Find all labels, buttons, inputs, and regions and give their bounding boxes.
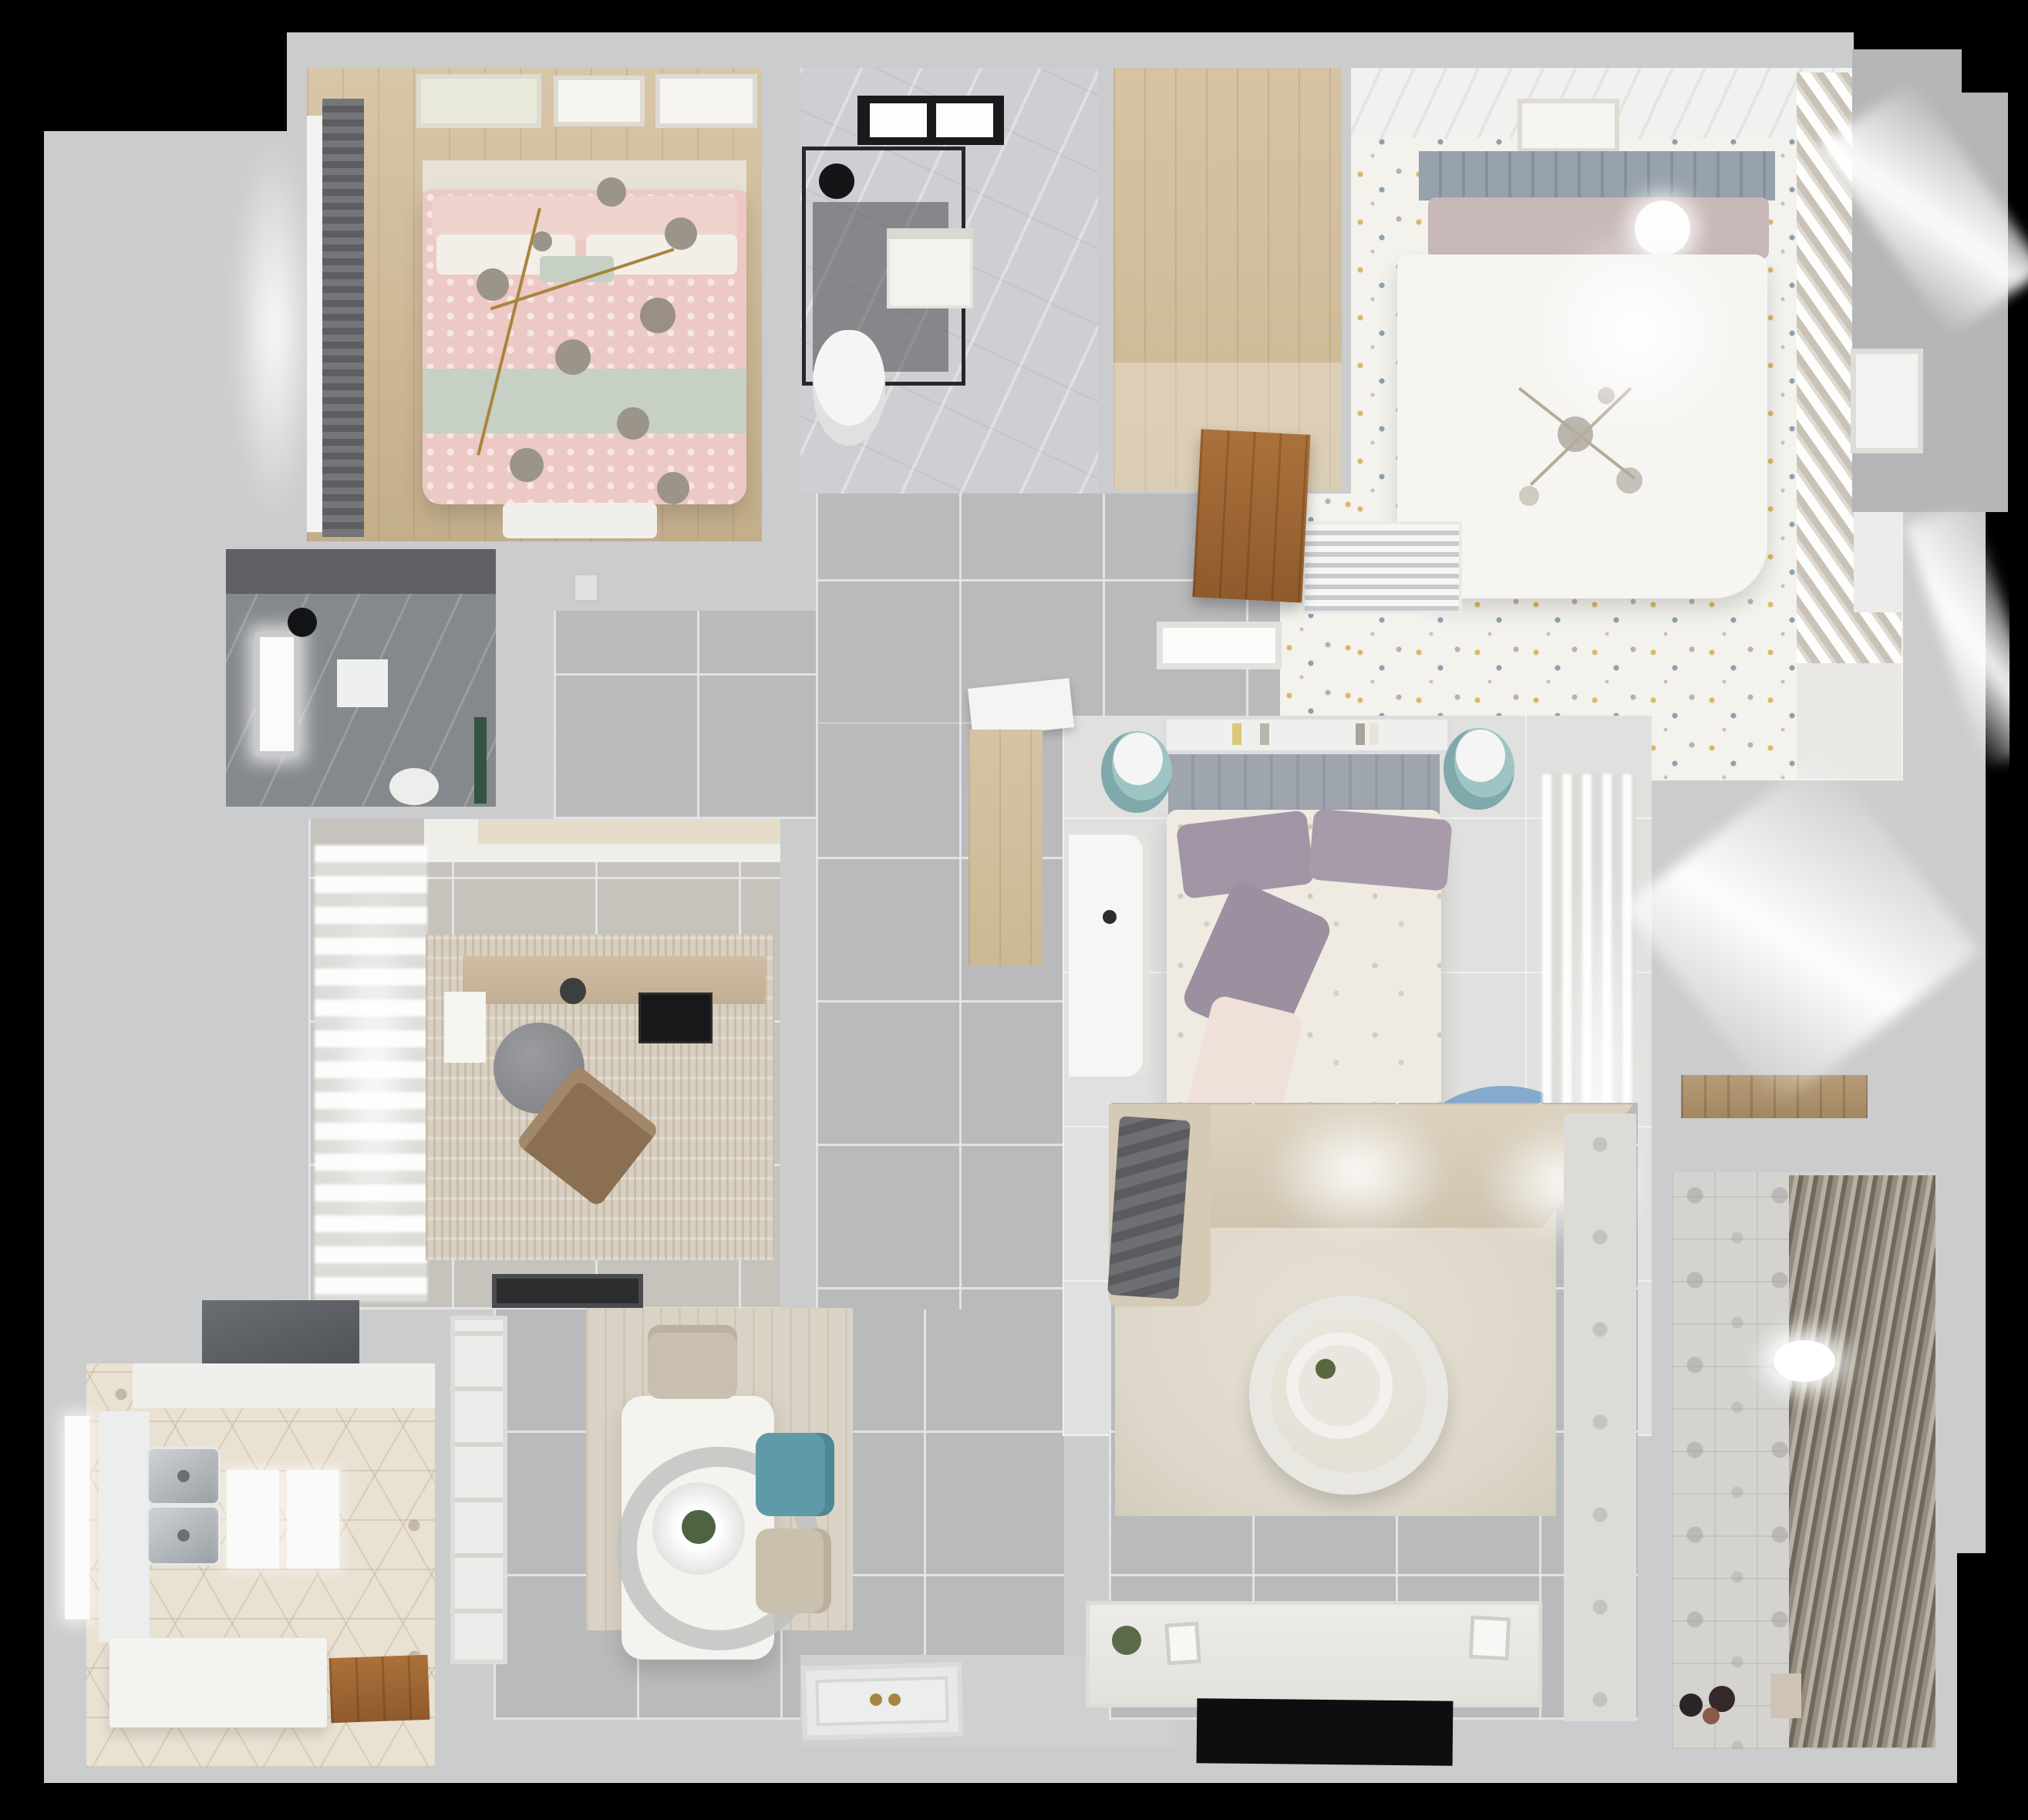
door-handle-1 (870, 1694, 882, 1706)
hall-wall-box (572, 572, 600, 603)
purple-pillow-right (1308, 808, 1452, 891)
decor-frame-2 (1469, 1616, 1511, 1661)
background-bottom (0, 1783, 2028, 1820)
wall-art-1 (554, 76, 645, 126)
dining-chair-top (648, 1325, 737, 1399)
coffee-table-inner (1286, 1333, 1393, 1439)
dining-chair-teal (756, 1433, 834, 1516)
skylight-pane-1 (870, 103, 927, 137)
bedroom2-wall-frame (1518, 99, 1619, 153)
splash-panel-2 (287, 1470, 339, 1569)
front-door (801, 1662, 963, 1740)
black-monitor (638, 993, 712, 1043)
book-spine (1260, 723, 1269, 745)
dining-chair-bottom (756, 1528, 831, 1613)
toilet (813, 330, 885, 446)
sink-top (147, 1447, 221, 1505)
book-shelf (1163, 716, 1451, 754)
open-wood-door (1192, 429, 1310, 602)
decor-vase-green (1112, 1626, 1141, 1655)
plant-centerpiece (682, 1510, 716, 1544)
venetian-blinds (1789, 1175, 1935, 1748)
branch-chandelier (532, 231, 552, 251)
bedroom1-headboard (423, 160, 746, 193)
bedroom3-desk (1069, 834, 1149, 1077)
sofa-light-glow-1 (1265, 1103, 1450, 1242)
balcony-threshold (1564, 1114, 1636, 1721)
door-handle-2 (888, 1694, 901, 1706)
bathroom2-shower-head (288, 608, 317, 637)
grey-throw (1107, 1116, 1191, 1299)
background-cutout-tr2 (1962, 31, 2028, 93)
office-curtain-glow (332, 864, 416, 1280)
bedroom3-headboard (1168, 754, 1440, 814)
office-pelmet (478, 819, 780, 844)
bedroom3-entry-niche (969, 730, 1043, 966)
bathroom2-wall-band (226, 549, 496, 594)
sink-bottom (147, 1505, 221, 1566)
kitchen-window (65, 1416, 89, 1619)
kitchen-left-counter (99, 1411, 150, 1643)
kitchen-wood-door (329, 1655, 430, 1723)
ac-vent-grille (1302, 521, 1462, 614)
splash-panel-1 (227, 1470, 279, 1569)
book-spine (1369, 723, 1379, 745)
office-desk (463, 956, 765, 1004)
book-spine (1232, 723, 1241, 745)
bathroom2-window (255, 632, 298, 756)
bathroom2-toilet (389, 768, 439, 805)
book-spine (1356, 723, 1365, 745)
bedroom2-headboard (1419, 151, 1775, 201)
window-light-glow (231, 131, 316, 524)
sage-throw (423, 369, 746, 433)
desk-plant-pot (560, 978, 586, 1004)
storage-box (1770, 1673, 1801, 1718)
kitchen-island-counter (109, 1638, 327, 1727)
decor-frame-1 (1164, 1622, 1201, 1666)
stool-top-left (1113, 733, 1163, 785)
wall-art-2 (655, 74, 757, 128)
china-cabinet (450, 1316, 507, 1664)
desk-papers (444, 992, 486, 1063)
background-top (0, 0, 2028, 32)
kitchen-upper-cabinets (133, 1363, 435, 1408)
stool-top-right (1456, 730, 1505, 782)
bed-bench (503, 503, 657, 538)
floor-toy-3 (1703, 1707, 1720, 1724)
bedroom1-curtain (322, 99, 364, 537)
background-left (0, 0, 44, 1820)
bedroom2-light-glow (1527, 224, 1743, 440)
book-spine (1246, 723, 1255, 745)
vanity-unit (887, 228, 973, 308)
background-cutout-br (1957, 1553, 2028, 1783)
shower-head (819, 163, 854, 199)
apartment-floorplan-render (0, 0, 2028, 1820)
balcony-ceiling-lamp (1774, 1340, 1835, 1382)
office-doormat (492, 1274, 643, 1308)
wall-art-green (416, 74, 541, 128)
skylight-pane-2 (936, 103, 993, 137)
green-accent (474, 717, 487, 804)
coffee-table-plant (1316, 1359, 1336, 1379)
side-door (1851, 349, 1923, 453)
bathroom2-shelf (337, 659, 388, 707)
display-shelf (1157, 622, 1282, 669)
desk-accessory (1103, 910, 1117, 924)
floor-toy-1 (1679, 1694, 1703, 1717)
flat-tv (1197, 1698, 1454, 1765)
